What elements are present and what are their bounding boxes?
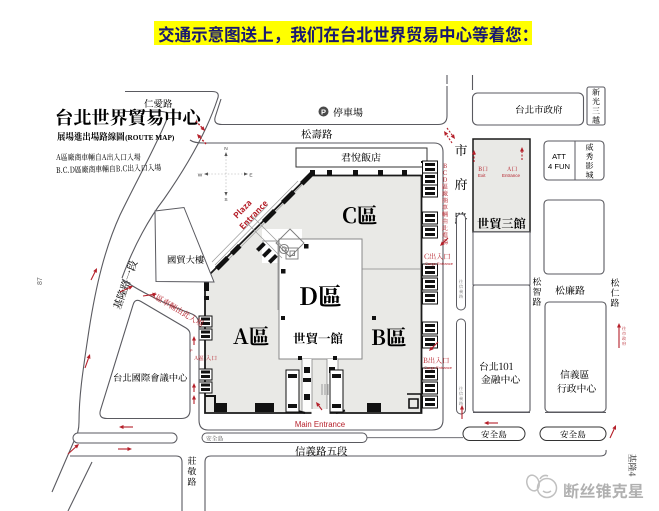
svg-text:(ROUTE MAP): (ROUTE MAP) <box>125 133 175 142</box>
svg-text:E: E <box>249 173 252 179</box>
svg-text:87: 87 <box>37 277 44 285</box>
svg-text:P: P <box>321 108 326 117</box>
svg-text:W: W <box>198 173 203 179</box>
svg-text:N: N <box>224 146 228 152</box>
svg-text:4 FUN: 4 FUN <box>548 162 570 171</box>
svg-text:Exit: Exit <box>478 173 486 178</box>
svg-text:Entrance: Entrance <box>502 173 521 178</box>
svg-text:Cargo Entrance: Cargo Entrance <box>425 261 454 266</box>
svg-text:S: S <box>224 197 227 203</box>
svg-text:ATT: ATT <box>552 152 566 161</box>
svg-text:Cargo Entrance: Cargo Entrance <box>424 365 453 370</box>
svg-text:Main Entrance: Main Entrance <box>295 420 345 429</box>
